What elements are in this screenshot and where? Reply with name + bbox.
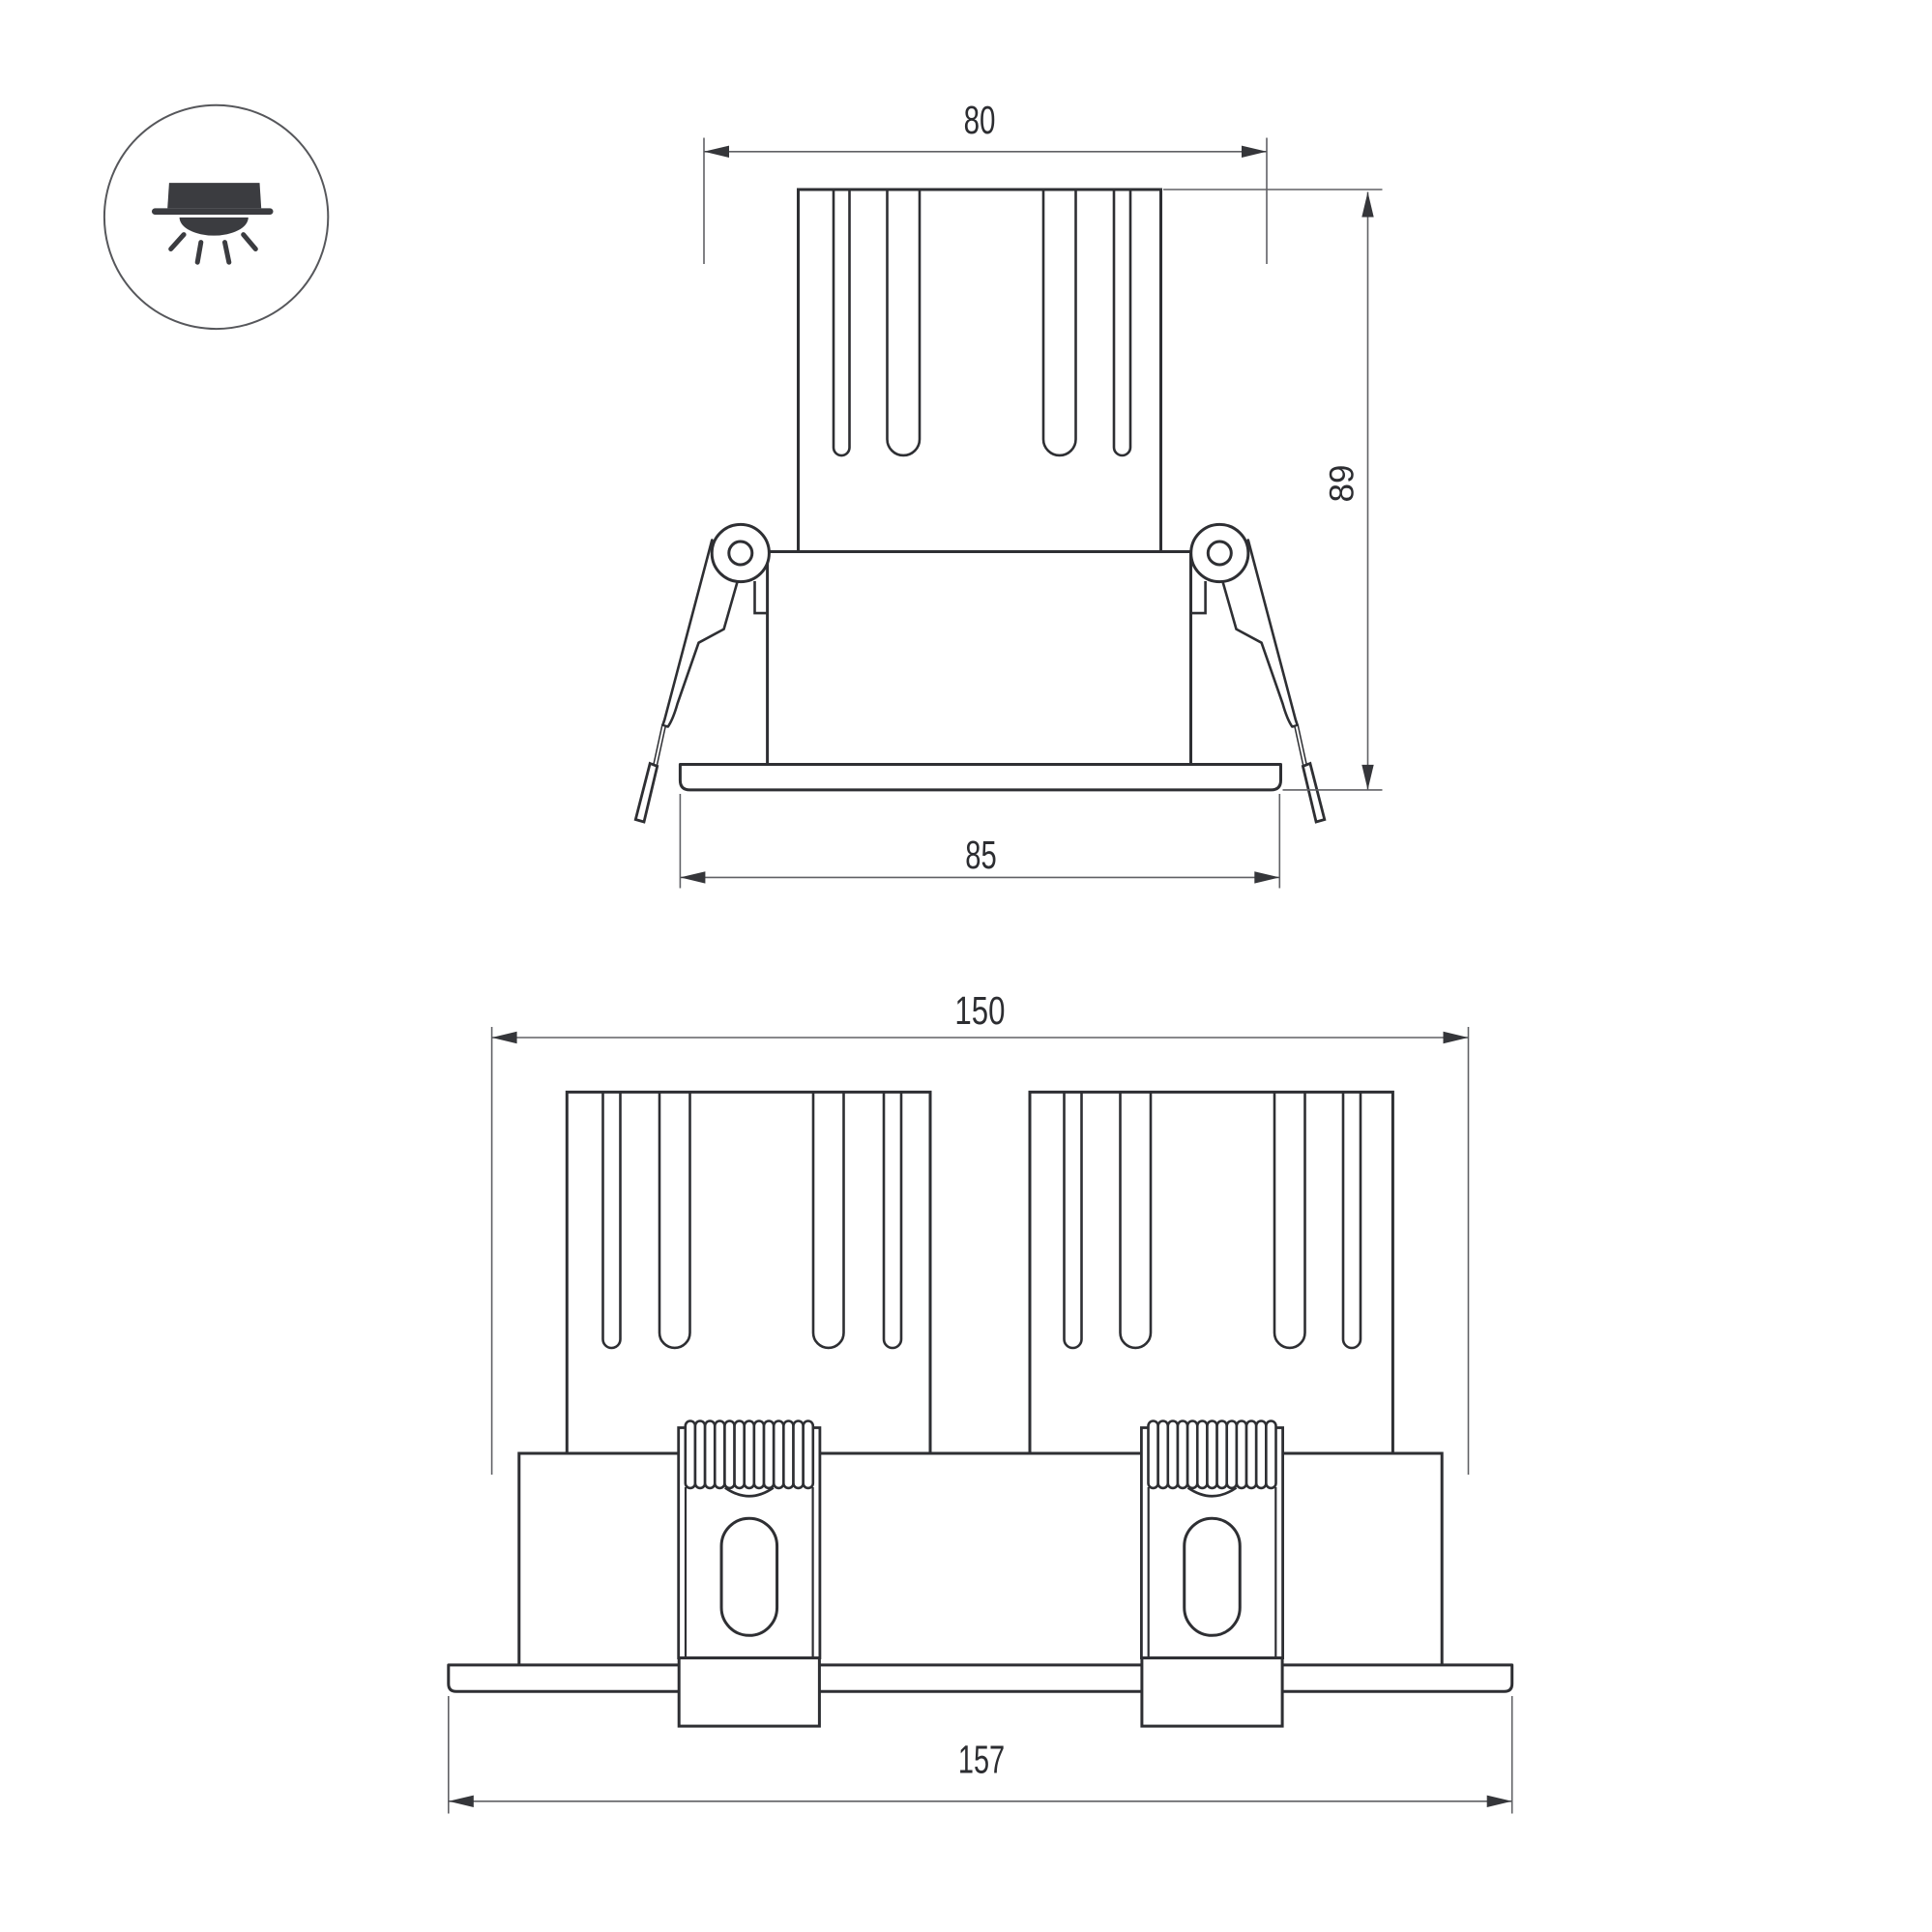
svg-text:89: 89	[1324, 465, 1361, 503]
svg-text:150: 150	[954, 988, 1005, 1033]
svg-text:157: 157	[958, 1739, 1005, 1782]
svg-text:80: 80	[964, 98, 996, 142]
svg-text:85: 85	[965, 834, 996, 877]
